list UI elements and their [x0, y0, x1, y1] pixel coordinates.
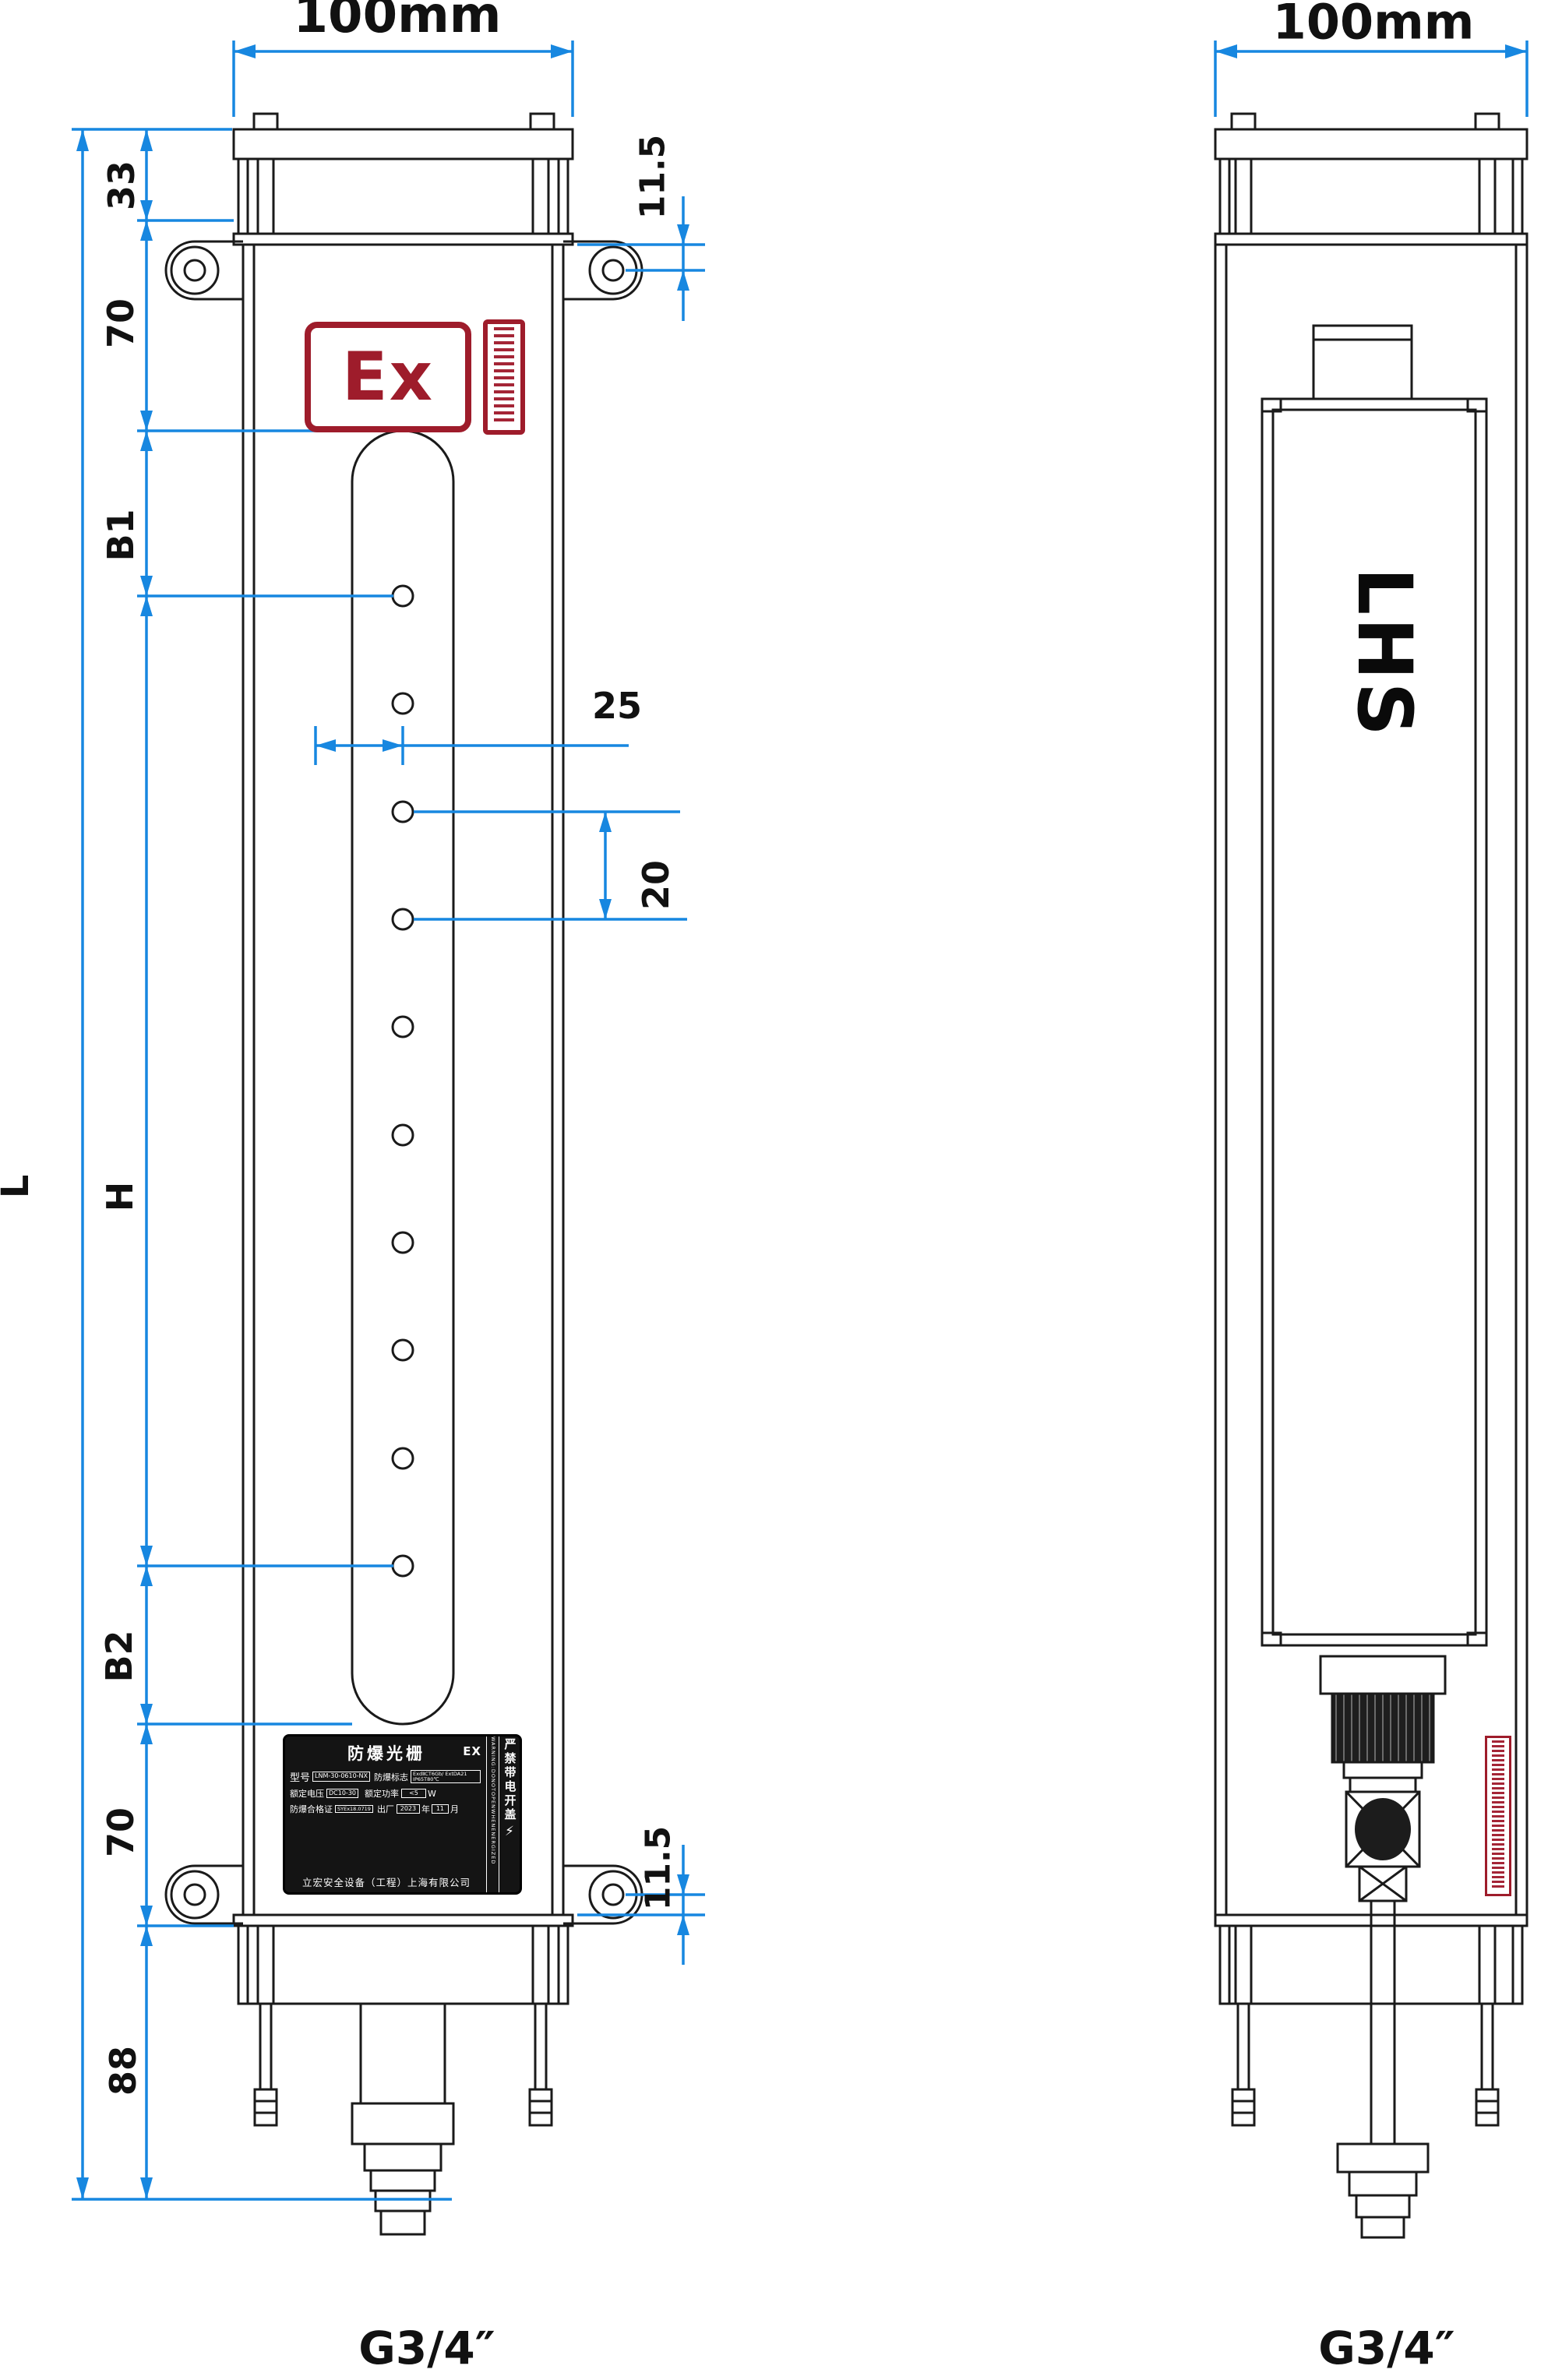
- beam-hole: [393, 1232, 413, 1253]
- model-label: 型号: [290, 1769, 310, 1784]
- power-value: <5: [401, 1789, 426, 1798]
- date-month: 11: [432, 1804, 449, 1814]
- dim-bracket-offset-bottom: 11.5: [639, 1826, 679, 1911]
- beam-hole: [393, 693, 413, 714]
- front-top-cap: [234, 114, 573, 245]
- nameplate-title: 防爆光栅: [347, 1741, 425, 1765]
- dim-lower-section: 70: [100, 1807, 142, 1857]
- nameplate-warning-en: WARNING:DONOTOPENWHENENERGIZED: [486, 1737, 499, 1892]
- company-name: 立宏安全设备（工程）上海有限公司: [290, 1874, 483, 1891]
- voltage-label: 额定电压: [290, 1787, 324, 1800]
- beam-hole: [393, 802, 413, 822]
- date-year: 2023: [397, 1804, 420, 1814]
- exmark-label: 防爆标志: [374, 1771, 408, 1783]
- warning-strip: [483, 319, 525, 435]
- side-view: [1215, 114, 1527, 2237]
- brand-logo: LHS: [1341, 567, 1428, 739]
- dim-first-beam-offset: B1: [100, 509, 142, 561]
- beam-hole: [393, 1340, 413, 1360]
- sensor-head-block: [1313, 326, 1412, 399]
- power-unit: W: [428, 1789, 436, 1799]
- beam-hole: [393, 586, 413, 606]
- front-mount-lugs-top: [166, 242, 642, 299]
- thread-label-front: G3/4″: [358, 2322, 495, 2375]
- side-top-cap: [1215, 114, 1527, 245]
- dim-beam-pitch: 20: [635, 860, 677, 910]
- warning-strip-microtext: [494, 327, 514, 424]
- month-unit: 月: [450, 1803, 459, 1815]
- cert-value: SYEx18.0719: [335, 1805, 373, 1814]
- cert-strip-microtext: [1492, 1740, 1504, 1888]
- nameplate-main: 防爆光栅 EX 型号 LNM-30-0610-NX 防爆标志 ExdⅡCT6Gb…: [285, 1737, 486, 1892]
- cable: [1371, 1901, 1395, 2144]
- dim-beam-center-offset: 25: [592, 685, 642, 727]
- lightning-icon: ⚡: [505, 1824, 514, 1839]
- front-body: [243, 245, 563, 1915]
- exmark-value: ExdⅡCT6Gb/ ExtDA21 IP65T80℃: [411, 1770, 481, 1784]
- technical-drawing-canvas: 100mm 100mm 33 70 B1 H B2 70 88 L 11.5 1…: [0, 0, 1562, 2380]
- dim-bottom-section: 88: [102, 2046, 144, 2096]
- model-value: LNM-30-0610-NX: [312, 1772, 370, 1781]
- beam-hole: [393, 1017, 413, 1037]
- nameplate-warning-cn: 严禁带电开盖 ⚡: [499, 1737, 520, 1892]
- cert-strip: [1485, 1736, 1511, 1896]
- thread-label-side: G3/4″: [1318, 2322, 1454, 2375]
- knurled-nut: [1332, 1694, 1433, 1762]
- beam-hole: [393, 909, 413, 929]
- voltage-value: DC10-30: [326, 1789, 358, 1798]
- ex-mark-badge: Ex: [305, 322, 471, 432]
- nameplate: 防爆光栅 EX 型号 LNM-30-0610-NX 防爆标志 ExdⅡCT6Gb…: [283, 1734, 522, 1895]
- power-label: 额定功率: [365, 1787, 399, 1800]
- cert-label: 防爆合格证: [290, 1803, 333, 1815]
- dim-last-beam-offset: B2: [98, 1630, 140, 1682]
- beam-hole: [393, 1556, 413, 1576]
- ex-mark-text: Ex: [342, 338, 434, 416]
- date-label: 出厂: [377, 1803, 394, 1815]
- front-bottom-cap: [234, 1915, 573, 2125]
- nameplate-title-suffix: EX: [463, 1744, 481, 1758]
- dim-front-width: 100mm: [294, 0, 502, 44]
- beam-hole: [393, 1448, 413, 1469]
- side-connector-assembly: [1320, 1656, 1445, 2144]
- linework: [0, 0, 1562, 2380]
- dim-overall-length: L: [0, 1175, 37, 1199]
- side-body: [1215, 245, 1527, 1915]
- year-unit: 年: [421, 1803, 430, 1815]
- dim-upper-section: 70: [100, 298, 142, 348]
- beam-hole: [393, 1125, 413, 1145]
- beam-slot: [352, 431, 453, 1724]
- dim-protective-height: H: [99, 1182, 141, 1212]
- dim-side-width: 100mm: [1273, 0, 1475, 51]
- dim-bracket-offset-top: 11.5: [633, 135, 673, 220]
- dim-top-cap: 33: [100, 160, 143, 210]
